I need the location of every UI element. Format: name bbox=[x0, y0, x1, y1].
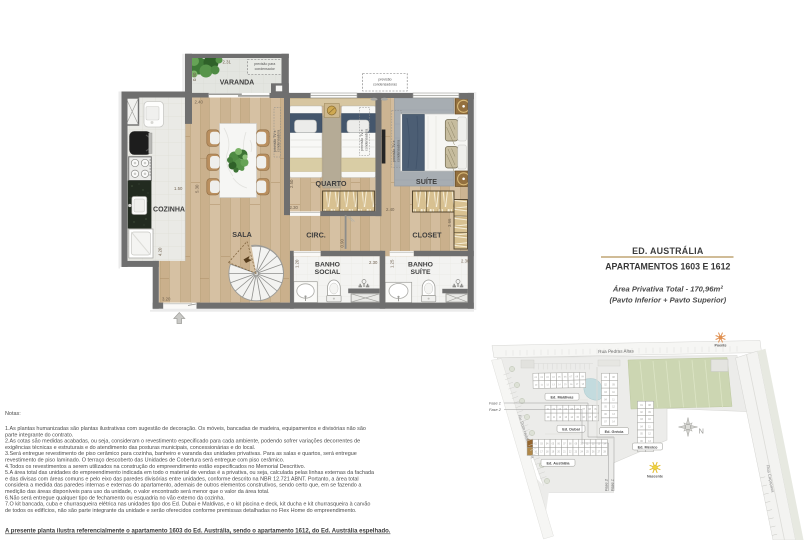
svg-text:Ed. Austrália: Ed. Austrália bbox=[546, 462, 570, 466]
svg-text:0.90: 0.90 bbox=[340, 239, 345, 248]
svg-text:5.30: 5.30 bbox=[195, 184, 200, 193]
svg-text:SUÍTE: SUÍTE bbox=[410, 267, 430, 276]
svg-text:2.As cotas são medidas acabada: 2.As cotas são medidas acabadas, ou seja… bbox=[5, 439, 360, 445]
svg-text:(Pavto Inferior + Pavto Superi: (Pavto Inferior + Pavto Superior) bbox=[609, 295, 726, 304]
svg-text:4.20: 4.20 bbox=[158, 247, 163, 256]
svg-text:SOCIAL: SOCIAL bbox=[315, 269, 341, 276]
svg-text:QUARTO: QUARTO bbox=[315, 179, 346, 188]
svg-text:0.90: 0.90 bbox=[192, 72, 197, 81]
svg-text:2.30: 2.30 bbox=[461, 259, 470, 264]
svg-text:1.25: 1.25 bbox=[390, 259, 395, 268]
svg-text:revestimento de piso laminado.: revestimento de piso laminado. O terraço… bbox=[5, 458, 285, 464]
svg-text:Fase 2: Fase 2 bbox=[604, 478, 609, 491]
svg-text:Ed. Grécia: Ed. Grécia bbox=[605, 430, 625, 434]
svg-text:Ed. México: Ed. México bbox=[638, 445, 659, 449]
svg-text:de todos os edifícios, não são: de todos os edifícios, não são parte int… bbox=[5, 508, 357, 514]
svg-text:4.Todos os revestimentos a ser: 4.Todos os revestimentos a serem utiliza… bbox=[5, 464, 306, 470]
svg-text:condensadoras: condensadoras bbox=[373, 83, 397, 87]
svg-text:condensador: condensador bbox=[255, 67, 276, 71]
svg-text:2.30: 2.30 bbox=[369, 260, 378, 265]
svg-text:e das divisas com áreas comuns: e das divisas com áreas comuns e pelo ei… bbox=[5, 476, 359, 482]
svg-text:N: N bbox=[699, 427, 704, 436]
svg-text:1.As plantas humanizadas são p: 1.As plantas humanizadas são plantas ilu… bbox=[5, 426, 366, 432]
svg-text:A presente planta ilustra refe: A presente planta ilustra referencialmen… bbox=[5, 529, 391, 535]
svg-text:condensadora: condensadora bbox=[365, 129, 369, 151]
svg-text:condensadora: condensadora bbox=[277, 130, 281, 152]
svg-text:previsão TV e: previsão TV e bbox=[392, 140, 396, 162]
svg-text:CLOSET: CLOSET bbox=[412, 231, 442, 240]
svg-text:3.66: 3.66 bbox=[447, 218, 452, 227]
svg-text:Notas:: Notas: bbox=[5, 411, 21, 417]
svg-text:VARANDA: VARANDA bbox=[220, 79, 254, 86]
svg-text:Fase 1: Fase 1 bbox=[489, 401, 501, 406]
svg-text:Ed. Dubai: Ed. Dubai bbox=[562, 428, 580, 432]
svg-text:BANHO: BANHO bbox=[315, 262, 340, 269]
svg-text:APARTAMENTOS 1603 E 1612: APARTAMENTOS 1603 E 1612 bbox=[605, 261, 730, 271]
svg-text:medição das áreas disponíveis: medição das áreas disponíveis para uso d… bbox=[5, 489, 270, 495]
svg-text:Nascente: Nascente bbox=[647, 475, 663, 479]
svg-text:BANHO: BANHO bbox=[408, 262, 433, 269]
svg-text:COZINHA: COZINHA bbox=[153, 206, 185, 213]
svg-text:Poente: Poente bbox=[715, 344, 727, 348]
svg-text:previsão para: previsão para bbox=[254, 62, 275, 66]
svg-text:Fase 2: Fase 2 bbox=[489, 407, 502, 412]
svg-text:1.20: 1.20 bbox=[295, 259, 300, 268]
svg-text:parte integrante do contrato.: parte integrante do contrato. bbox=[5, 432, 74, 438]
svg-text:condensadora: condensadora bbox=[397, 140, 401, 162]
svg-text:Ed. Maldivas: Ed. Maldivas bbox=[550, 396, 573, 400]
svg-text:7.O kit bancada, cuba e churra: 7.O kit bancada, cuba e churrasqueira el… bbox=[5, 502, 370, 508]
svg-text:previsão: previsão bbox=[378, 78, 391, 82]
svg-text:2.30: 2.30 bbox=[290, 205, 299, 210]
svg-text:SUÍTE: SUÍTE bbox=[416, 177, 437, 186]
svg-text:2.31: 2.31 bbox=[223, 60, 232, 65]
svg-text:6.Não será entregue qualquer t: 6.Não será entregue qualquer tipo de fec… bbox=[5, 495, 225, 501]
svg-text:CIRC.: CIRC. bbox=[306, 231, 326, 240]
svg-text:previsão TV e: previsão TV e bbox=[360, 129, 364, 151]
svg-text:considera a medida das paredes: considera a medida das paredes internas … bbox=[5, 483, 362, 489]
svg-text:3.20: 3.20 bbox=[162, 297, 171, 302]
svg-text:3.Será entregue revestimento d: 3.Será entregue revestimento de piso cer… bbox=[5, 451, 357, 457]
svg-text:exigências técnicas e estrutur: exigências técnicas e estruturais e do a… bbox=[5, 445, 256, 451]
svg-text:2.40: 2.40 bbox=[386, 207, 395, 212]
svg-text:2.40: 2.40 bbox=[195, 100, 204, 105]
svg-text:ED. AUSTRÁLIA: ED. AUSTRÁLIA bbox=[632, 246, 704, 256]
svg-text:1.50: 1.50 bbox=[174, 186, 183, 191]
svg-text:Rua Pedras Altas: Rua Pedras Altas bbox=[598, 348, 634, 354]
svg-text:SALA: SALA bbox=[232, 230, 252, 239]
svg-text:Fase 1: Fase 1 bbox=[610, 479, 615, 491]
svg-text:2.50: 2.50 bbox=[289, 179, 294, 188]
svg-text:Área Privativa Total - 170,96m: Área Privativa Total - 170,96m² bbox=[612, 285, 723, 294]
svg-text:5.A área total das unidades do: 5.A área total das unidades do empreendi… bbox=[5, 470, 375, 476]
